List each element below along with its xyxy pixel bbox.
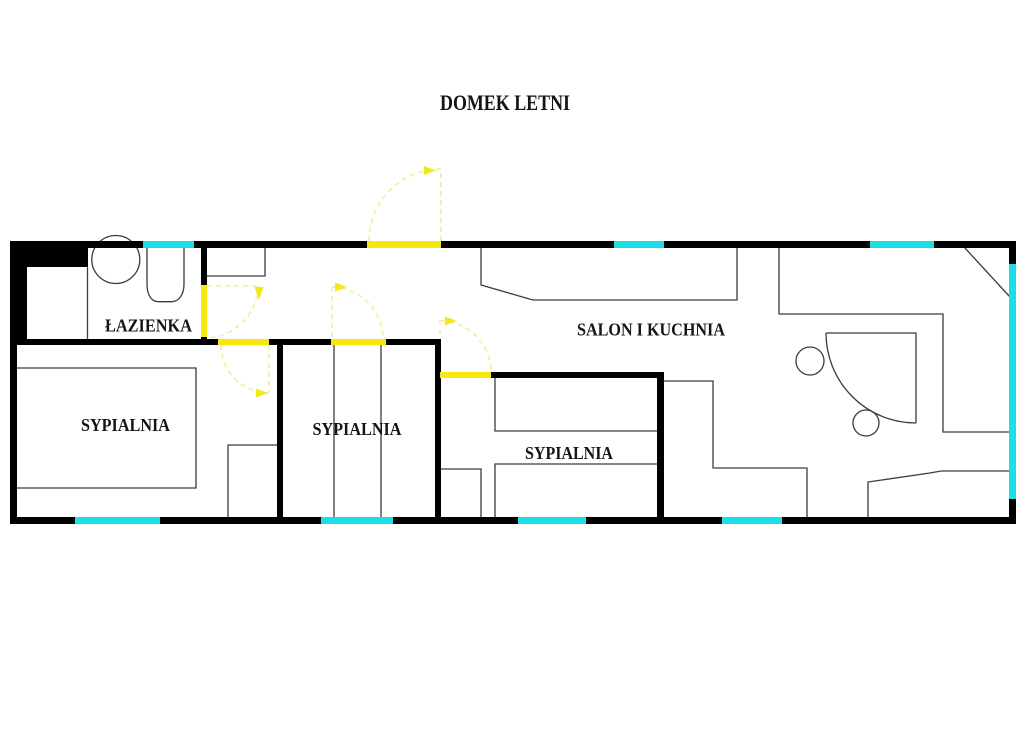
svg-text:SYPIALNIA: SYPIALNIA	[81, 415, 170, 435]
svg-text:DOMEK LETNI: DOMEK LETNI	[440, 90, 570, 115]
svg-text:SYPIALNIA: SYPIALNIA	[525, 443, 613, 463]
svg-text:SYPIALNIA: SYPIALNIA	[313, 419, 402, 439]
svg-text:SALON I KUCHNIA: SALON I KUCHNIA	[577, 320, 725, 340]
svg-text:ŁAZIENKA: ŁAZIENKA	[105, 316, 192, 336]
